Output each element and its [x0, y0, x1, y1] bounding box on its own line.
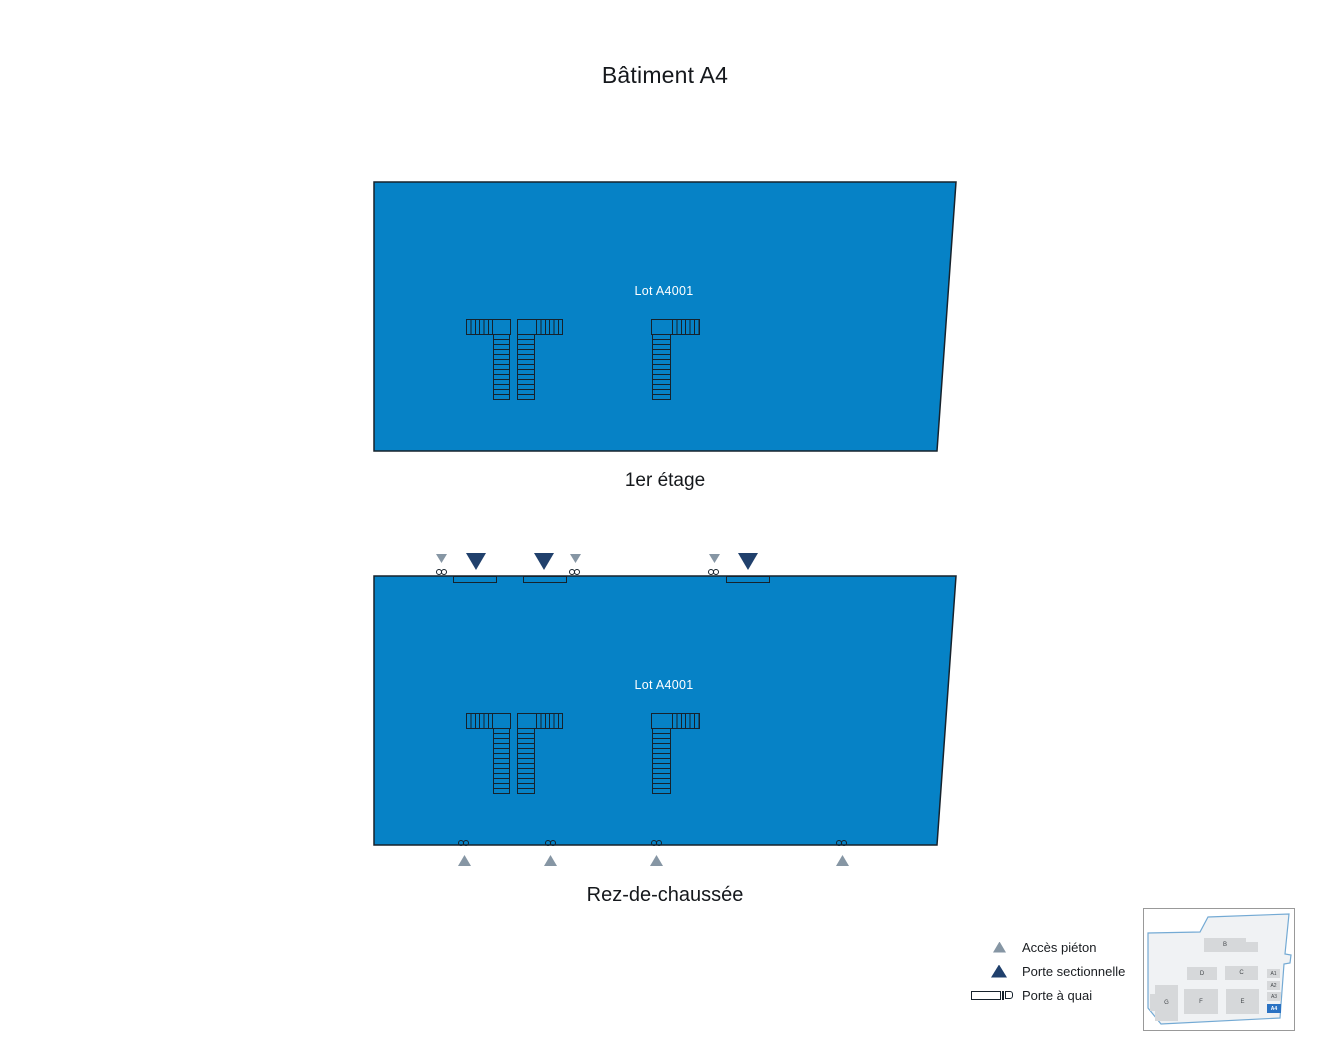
lot-a4001-area-ground-floor[interactable]: [374, 576, 956, 845]
staircase-run-icon: [652, 334, 671, 400]
pedestrian-access-icon: [544, 855, 557, 866]
building-label: A2: [1270, 983, 1276, 989]
door-swing-icon: [836, 840, 847, 846]
minimap-building-f[interactable]: F: [1184, 989, 1218, 1014]
legend-label: Porte sectionnelle: [1022, 964, 1125, 979]
staircase-run-icon: [466, 713, 493, 729]
staircase-run-icon: [672, 713, 700, 729]
minimap-building-a4-highlighted[interactable]: A4: [1267, 1004, 1281, 1013]
lot-label-first-floor: Lot A4001: [634, 284, 693, 298]
minimap-building-b-extension: [1246, 942, 1258, 952]
staircase-landing-icon: [651, 713, 673, 729]
building-label: A3: [1271, 994, 1277, 1000]
minimap-building-a2[interactable]: A2: [1267, 981, 1280, 990]
legend-item-pedestrian: Accès piéton: [955, 935, 1125, 959]
staircase-run-icon: [536, 319, 563, 335]
floor-caption-first: 1er étage: [373, 470, 957, 492]
lot-a4001-area-first-floor[interactable]: [374, 182, 956, 451]
staircase-landing-icon: [492, 713, 511, 729]
sectional-door-opening: [453, 576, 497, 583]
building-label: C: [1239, 970, 1243, 976]
pedestrian-access-icon: [836, 855, 849, 866]
floor-plan-ground-floor: Lot A4001: [373, 575, 957, 846]
minimap-building-e[interactable]: E: [1226, 989, 1259, 1014]
staircase-run-icon: [493, 728, 510, 794]
building-label: G: [1164, 1000, 1169, 1006]
door-swing-icon: [569, 569, 580, 575]
minimap-building-d[interactable]: D: [1187, 967, 1217, 980]
sectional-door-icon: [466, 553, 486, 570]
sectional-door-opening: [726, 576, 770, 583]
building-label: F: [1199, 999, 1203, 1005]
building-label: D: [1200, 971, 1204, 977]
staircase-landing-icon: [651, 319, 673, 335]
pedestrian-access-icon: [650, 855, 663, 866]
staircase-run-icon: [517, 334, 535, 400]
staircase-run-icon: [652, 728, 671, 794]
sectional-door-opening: [523, 576, 567, 583]
door-swing-icon: [458, 840, 469, 846]
building-label: B: [1223, 942, 1227, 948]
staircase-run-icon: [466, 319, 493, 335]
building-label: A4: [1271, 1006, 1277, 1012]
staircase-landing-icon: [517, 319, 537, 335]
minimap-building-a1[interactable]: A1: [1267, 969, 1280, 978]
building-label: E: [1240, 999, 1244, 1005]
floor-caption-ground: Rez-de-chaussée: [373, 884, 957, 907]
lot-label-ground-floor: Lot A4001: [634, 678, 693, 692]
legend-item-sectional-door: Porte sectionnelle: [955, 959, 1125, 983]
pedestrian-access-icon: [458, 855, 471, 866]
legend-label: Accès piéton: [1022, 940, 1096, 955]
pedestrian-access-icon: [993, 942, 1006, 953]
staircase-landing-icon: [517, 713, 537, 729]
door-swing-icon: [651, 840, 662, 846]
minimap-building-c[interactable]: C: [1225, 966, 1258, 980]
page-title: Bâtiment A4: [0, 62, 1330, 89]
pedestrian-access-icon: [570, 554, 581, 563]
floor-plan-page: Bâtiment A4 Lot A4001 1er étage: [0, 0, 1330, 1060]
legend-label: Porte à quai: [1022, 988, 1092, 1003]
floor-plan-first-floor: Lot A4001: [373, 181, 957, 452]
minimap-building-g[interactable]: G: [1155, 985, 1178, 1021]
staircase-run-icon: [536, 713, 563, 729]
legend-item-dock-door: Porte à quai: [955, 983, 1125, 1007]
minimap-building-a3[interactable]: A3: [1267, 992, 1281, 1001]
staircase-run-icon: [493, 334, 510, 400]
minimap-building-b[interactable]: B: [1204, 938, 1246, 952]
staircase-run-icon: [672, 319, 700, 335]
building-label: A1: [1270, 971, 1276, 977]
door-swing-icon: [545, 840, 556, 846]
pedestrian-access-icon: [709, 554, 720, 563]
site-minimap: B D C A1 A2 A3 A4 G F E: [1143, 908, 1295, 1031]
staircase-run-icon: [517, 728, 535, 794]
staircase-landing-icon: [492, 319, 511, 335]
door-swing-icon: [436, 569, 447, 575]
pedestrian-access-icon: [436, 554, 447, 563]
sectional-door-icon: [991, 965, 1007, 978]
legend: Accès piéton Porte sectionnelle Porte à …: [955, 935, 1125, 1007]
door-swing-icon: [708, 569, 719, 575]
dock-door-icon: [971, 991, 1013, 1000]
sectional-door-icon: [738, 553, 758, 570]
sectional-door-icon: [534, 553, 554, 570]
